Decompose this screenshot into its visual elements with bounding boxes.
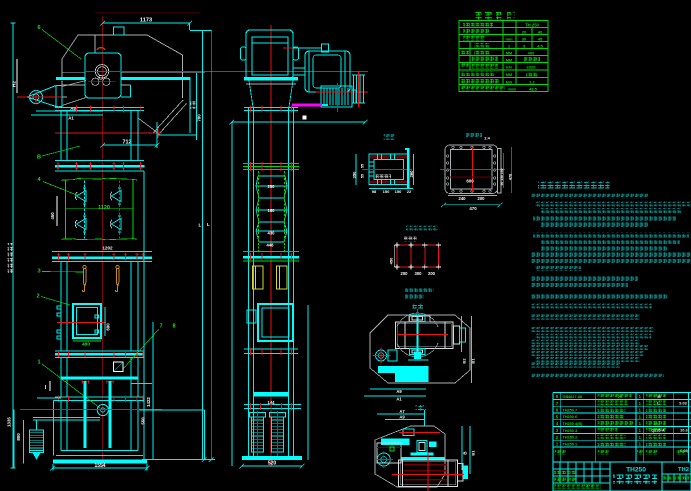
svg-text:L: L [207,222,210,228]
svg-text:400: 400 [528,50,535,55]
svg-text:≥320: ≥320 [527,65,537,70]
svg-text:MM: MM [506,73,512,77]
svg-text:A7: A7 [399,409,405,414]
svg-text:470: 470 [469,206,477,211]
svg-text:TH250.1: TH250.1 [563,442,578,446]
svg-text:1202: 1202 [102,246,113,251]
svg-text:800: 800 [16,433,21,441]
svg-text:200: 200 [478,196,486,201]
svg-text:480: 480 [82,342,90,348]
svg-text:550: 550 [141,417,146,425]
svg-text:3: 3 [37,269,40,275]
svg-text:MM: MM [506,58,512,62]
svg-text:600: 600 [466,179,474,184]
svg-text:470: 470 [509,174,513,180]
svg-text:712: 712 [123,140,132,146]
svg-text:A9: A9 [396,389,402,394]
svg-text:30: 30 [522,36,527,41]
svg-text:690: 690 [106,323,111,331]
svg-text:200: 200 [428,271,436,276]
svg-text:250: 250 [268,184,276,189]
svg-text:200: 200 [401,271,409,276]
svg-text:20: 20 [522,29,527,34]
svg-text:20.6: 20.6 [680,429,687,433]
svg-text:1173: 1173 [140,18,152,24]
svg-text:780: 780 [197,114,202,122]
svg-text:430: 430 [268,231,276,236]
svg-text:2: 2 [36,294,39,300]
svg-text:360: 360 [409,170,414,178]
svg-text:40: 40 [654,422,658,426]
svg-text:448: 448 [267,243,275,248]
svg-text:r/min: r/min [508,87,517,91]
svg-text:180: 180 [268,208,276,213]
svg-text:B: B [37,155,41,161]
svg-text:6: 6 [37,25,40,31]
svg-text:240: 240 [459,196,467,201]
svg-text:48.5: 48.5 [529,86,538,91]
svg-text:TH250.3: TH250.3 [563,429,578,433]
svg-text:MM: MM [506,51,512,55]
svg-text:300: 300 [415,271,423,276]
svg-text:1554: 1554 [94,463,105,469]
svg-text:KN: KN [506,66,512,70]
svg-text:1:4: 1:4 [484,136,491,141]
svg-text:B1: B1 [471,450,476,456]
svg-text:TH250.7: TH250.7 [563,408,578,412]
svg-text:TH250: TH250 [626,467,646,474]
svg-text:98: 98 [372,189,377,194]
svg-text:4.5: 4.5 [537,43,543,48]
svg-text:B2: B2 [462,358,467,364]
svg-text:450: 450 [389,257,394,264]
svg-text:520: 520 [268,461,277,467]
svg-text:1120: 1120 [98,205,110,211]
svg-text:40: 40 [538,29,543,34]
svg-text:A1: A1 [68,116,74,121]
svg-text:TH2: TH2 [678,467,689,473]
svg-text:GB8827-88: GB8827-88 [563,395,583,399]
svg-text:TH250.6: TH250.6 [563,415,578,419]
svg-text:B1: B1 [471,358,476,364]
svg-text:7: 7 [159,324,162,330]
svg-text:M/S: M/S [506,80,513,84]
svg-text:55: 55 [361,174,365,178]
svg-text:L: L [199,223,202,229]
svg-text:TH 250: TH 250 [525,23,539,28]
svg-text:TH250.2: TH250.2 [563,436,578,440]
svg-text:1422: 1422 [146,397,151,407]
svg-text:1.2: 1.2 [529,79,535,84]
svg-text:mm: mm [505,36,513,41]
svg-text:TH250.4(B): TH250.4(B) [563,422,584,426]
svg-text:20: 20 [618,395,622,399]
svg-text:350: 350 [352,171,357,178]
svg-text:1335: 1335 [7,417,12,427]
svg-text:Q235-A: Q235-A [651,429,665,433]
svg-text:150: 150 [383,189,390,194]
svg-text:9.03: 9.03 [679,402,686,406]
svg-text:1: 1 [37,360,40,366]
svg-text:22: 22 [407,189,412,194]
svg-text:H2: H2 [12,81,17,87]
svg-text:50 130 130: 50 130 130 [500,168,504,185]
svg-text:450: 450 [50,212,55,220]
svg-text:150: 150 [395,189,402,194]
svg-text:B: B [463,451,468,454]
svg-text:A9: A9 [399,414,405,419]
svg-text:55: 55 [361,164,365,168]
svg-text:8: 8 [172,324,175,330]
svg-text:A1: A1 [396,397,402,402]
svg-text:45: 45 [538,36,543,41]
